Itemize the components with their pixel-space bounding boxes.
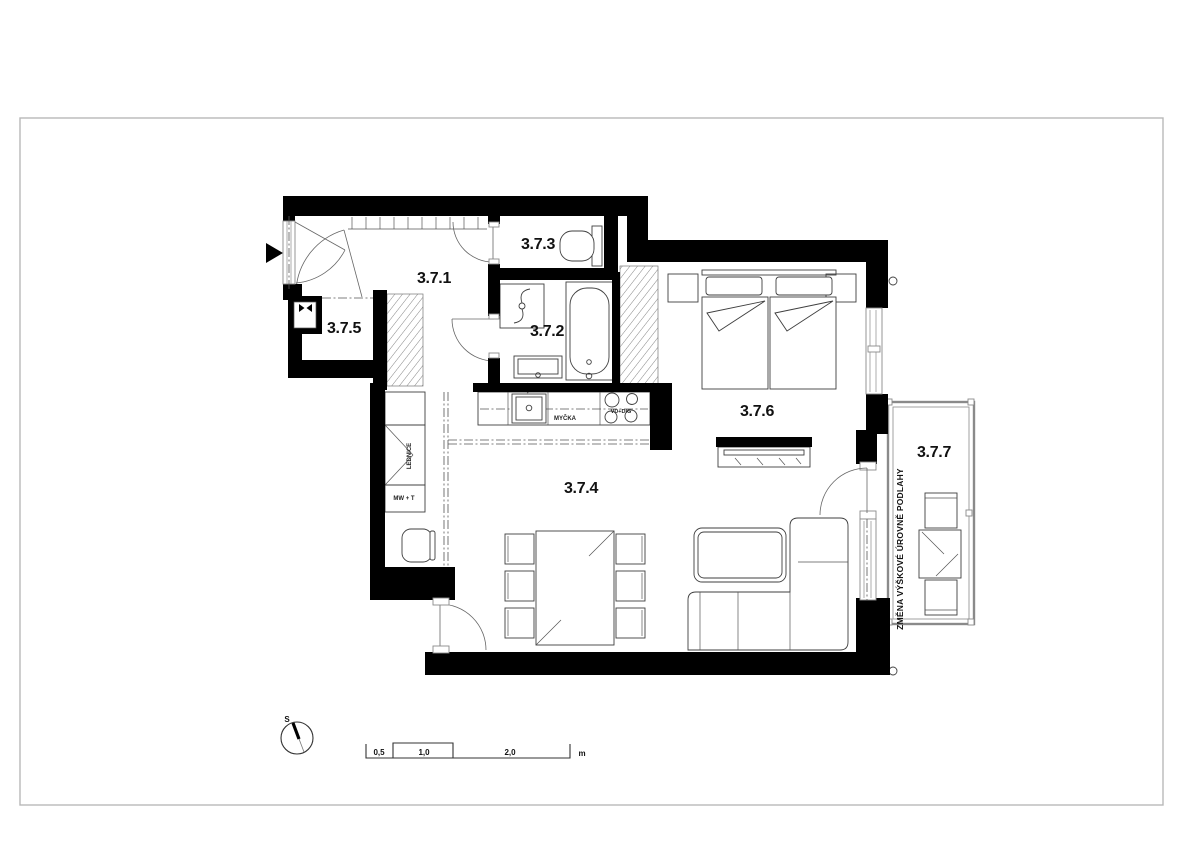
entrance-door-leaf xyxy=(295,222,345,250)
floor-plan-svg: 3.7.1 3.7.2 3.7.3 3.7.4 3.7.5 3.7.6 3.7.… xyxy=(0,0,1200,841)
tv-screen xyxy=(724,450,804,455)
scale-tick-05: 0,5 xyxy=(373,748,385,757)
living-room-furniture xyxy=(402,447,848,650)
north-label: S xyxy=(284,715,290,724)
scale-tick-10: 1,0 xyxy=(418,748,430,757)
kitchen-sink xyxy=(512,394,546,423)
room-label-3-7-6: 3.7.6 xyxy=(740,403,774,420)
hob-burner xyxy=(605,393,619,407)
corridor-wardrobe xyxy=(387,294,423,386)
entrance-door-swing xyxy=(296,250,345,283)
living-door-swing xyxy=(440,604,486,650)
wc-door-swing xyxy=(453,222,493,262)
shaft xyxy=(294,302,316,328)
balcony-door-swing xyxy=(820,468,867,515)
entrance-arrow xyxy=(266,243,283,263)
tv-cabinet-marks xyxy=(735,458,801,465)
living-window xyxy=(860,519,876,600)
room-label-3-7-3: 3.7.3 xyxy=(521,236,555,253)
entry-hall-furniture xyxy=(295,217,487,297)
column-marker xyxy=(889,667,897,675)
bedroom-closet xyxy=(620,266,658,384)
fridge-label: LEDNICE xyxy=(407,443,413,469)
washing-machine-symbol xyxy=(519,303,525,309)
bedroom-furniture xyxy=(668,270,856,389)
nightstand-left xyxy=(668,274,698,302)
scale-bar: 0,5 1,0 2,0 m xyxy=(366,743,586,758)
page-border-frame xyxy=(20,118,1163,805)
compass: S xyxy=(281,715,313,754)
compass-needle xyxy=(293,723,299,739)
bathroom-door-swing xyxy=(452,319,494,361)
inner-door-swing xyxy=(296,230,344,290)
coffee-table xyxy=(694,528,786,582)
armchair-back xyxy=(430,531,435,560)
scale-unit: m xyxy=(578,749,585,758)
floor-plan-page: 3.7.1 3.7.2 3.7.3 3.7.4 3.7.5 3.7.6 3.7.… xyxy=(0,0,1200,841)
washing-machine xyxy=(500,284,544,328)
dishwasher-label: MYČKA xyxy=(554,415,577,422)
tv-partition-wall xyxy=(716,437,812,447)
pillow-right xyxy=(776,277,832,295)
hob-label: VD+DIG xyxy=(611,409,632,415)
pillow-left xyxy=(706,277,762,295)
room-label-3-7-4: 3.7.4 xyxy=(564,480,598,497)
balcony-table xyxy=(919,530,961,578)
room-label-3-7-5: 3.7.5 xyxy=(327,320,361,337)
microwave-label: MW + T xyxy=(393,496,414,502)
room-label-3-7-2: 3.7.2 xyxy=(530,323,564,340)
scale-tick-20: 2,0 xyxy=(504,748,516,757)
armchair xyxy=(402,529,432,562)
bathtub xyxy=(566,282,613,380)
hob-burner xyxy=(627,394,638,405)
floor-level-note: ZMĚNA VÝŠKOVÉ ÚROVNĚ PODLAHY xyxy=(894,468,905,630)
kitchen-tall-cabinet xyxy=(385,392,425,425)
headboard xyxy=(702,270,836,275)
inner-door-leaf xyxy=(344,230,362,297)
coat-rail-ticks xyxy=(352,217,478,229)
column-marker xyxy=(889,277,897,285)
fridge-cabinet xyxy=(385,425,425,485)
dining-table xyxy=(536,531,614,645)
room-label-3-7-1: 3.7.1 xyxy=(417,270,451,287)
room-label-3-7-7: 3.7.7 xyxy=(917,444,951,461)
toilet-bowl xyxy=(560,231,594,261)
